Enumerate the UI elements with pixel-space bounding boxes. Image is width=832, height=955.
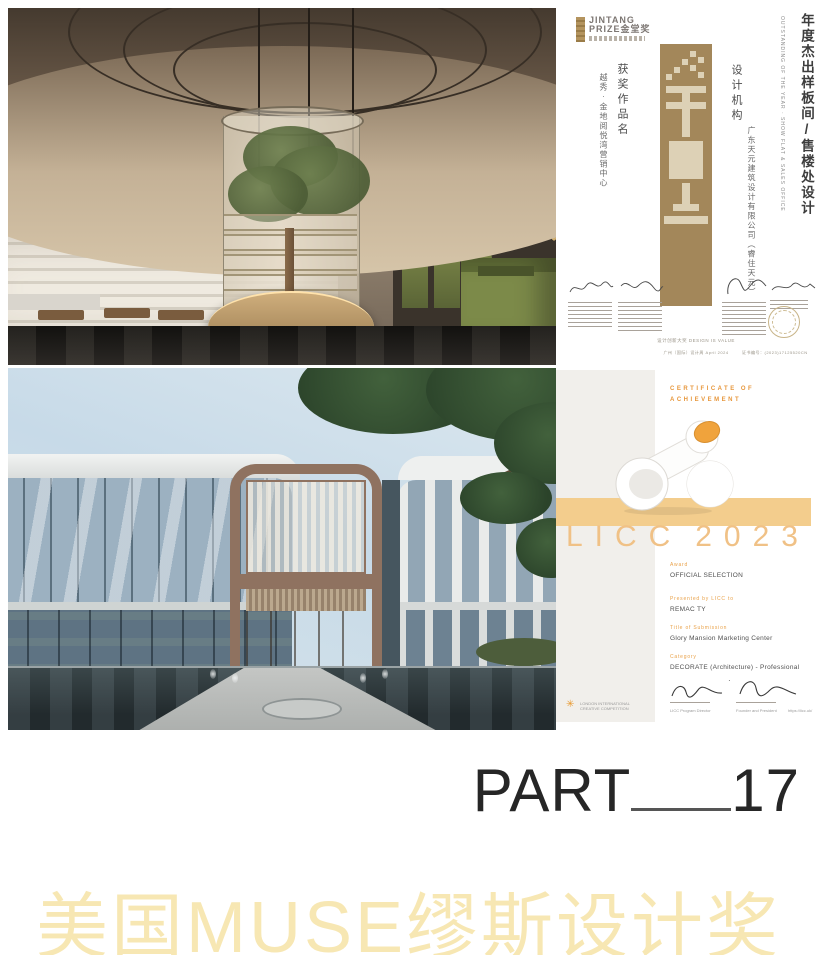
part-label: PART xyxy=(473,757,631,824)
official-seal xyxy=(768,306,800,338)
part-underscore xyxy=(631,808,731,811)
founder-name-line xyxy=(736,702,776,706)
certificate-heading: CERTIFICATE OF ACHIEVEMENT xyxy=(670,384,754,406)
licc-asterisk-logo: ✳ xyxy=(566,700,574,710)
bench xyxy=(38,310,84,320)
fountain-jet xyxy=(360,673,366,683)
work-name-label: 获奖作品名 xyxy=(614,63,630,143)
certificate-heading-line2: ACHIEVEMENT xyxy=(670,395,754,406)
licc-brand: LICC xyxy=(566,520,682,554)
bench xyxy=(104,308,150,318)
fountain-jet xyxy=(210,669,216,679)
side-counter xyxy=(8,294,100,310)
jury-signature xyxy=(568,278,614,298)
submission-label: Title of Submission xyxy=(670,625,727,631)
design-org-label: 设计机构 xyxy=(728,64,744,124)
licc-url: https://licc.uk/ xyxy=(788,708,812,713)
jintang-logo-bar xyxy=(576,17,585,42)
signature-caption-lines xyxy=(722,302,766,336)
certificate-number: 证书编号：(2023)17125520CN xyxy=(742,350,828,356)
floor xyxy=(8,326,556,365)
walkway-emblem xyxy=(262,698,342,720)
signature-caption-lines xyxy=(618,302,662,332)
work-name-value: 越秀·金地阅悦湾营销中心 xyxy=(598,73,609,193)
footer-slogan: 设计创新大奖 DESIGN IS VALUE xyxy=(616,338,776,344)
licc-org-line2: CREATIVE COMPETITION xyxy=(580,706,630,711)
licc-org-name: LONDON INTERNATIONAL CREATIVE COMPETITIO… xyxy=(580,701,630,711)
part-heading: PART17 xyxy=(0,756,800,825)
muse-award-title: 美国MUSE缪斯设计奖 xyxy=(36,868,832,955)
bench xyxy=(158,310,204,320)
exterior-building-photo xyxy=(8,368,556,730)
category-value: DECORATE (Architecture) - Professional xyxy=(670,664,799,671)
category-label: Category xyxy=(670,654,697,660)
jintang-emblem-tower xyxy=(660,44,712,306)
tree-canopy xyxy=(460,472,552,524)
award-value: OFFICIAL SELECTION xyxy=(670,572,743,579)
signature-caption-lines xyxy=(568,302,612,328)
part-number: 17 xyxy=(731,757,800,824)
jury-signature xyxy=(770,278,816,298)
licc-year: 2023 xyxy=(695,520,810,554)
founder-role: Founder and President xyxy=(736,708,777,713)
cabinet-slot xyxy=(478,266,534,276)
ceiling-ring xyxy=(173,22,437,118)
interior-lobby-photo xyxy=(8,8,556,365)
jintang-logo: JINTANG PRIZE金堂奖 xyxy=(589,16,651,34)
certificate-heading-line1: CERTIFICATE OF xyxy=(670,384,754,395)
award-label: Award xyxy=(670,562,688,568)
licc-trophy xyxy=(606,412,742,516)
jury-signature xyxy=(618,276,664,296)
jintang-logo-line2: PRIZE金堂奖 xyxy=(589,25,651,34)
award-page: JINTANG PRIZE金堂奖 年度杰出样板间/售楼处设计 OUTSTANDI… xyxy=(0,0,832,955)
pool-edge xyxy=(8,666,556,668)
presented-label: Presented by LICC to xyxy=(670,596,734,602)
award-category-title-en: OUTSTANDING OF THE YEAR · SHOW FLAT & SA… xyxy=(779,16,785,216)
presented-value: REMAC TY xyxy=(670,606,706,613)
director-name-line xyxy=(670,702,710,706)
signature-separator: · xyxy=(728,676,731,685)
licc-year-row: LICC 2023 xyxy=(566,520,810,554)
director-role: LICC Program Director xyxy=(670,708,711,713)
bronze-portal-frame xyxy=(230,464,382,700)
fountain-jet xyxy=(382,669,388,679)
jintang-logo-tagline-lines xyxy=(589,36,645,41)
jintang-certificate: JINTANG PRIZE金堂奖 年度杰出样板间/售楼处设计 OUTSTANDI… xyxy=(556,0,832,368)
fountain-jet xyxy=(232,673,238,683)
submission-value: Glory Mansion Marketing Center xyxy=(670,635,773,642)
award-category-title-cn: 年度杰出样板间/售楼处设计 xyxy=(796,13,816,228)
jury-signature xyxy=(722,272,768,298)
right-floor-band xyxy=(398,602,556,610)
licc-certificate: CERTIFICATE OF ACHIEVEMENT LICC 2023 Awa… xyxy=(556,370,832,730)
